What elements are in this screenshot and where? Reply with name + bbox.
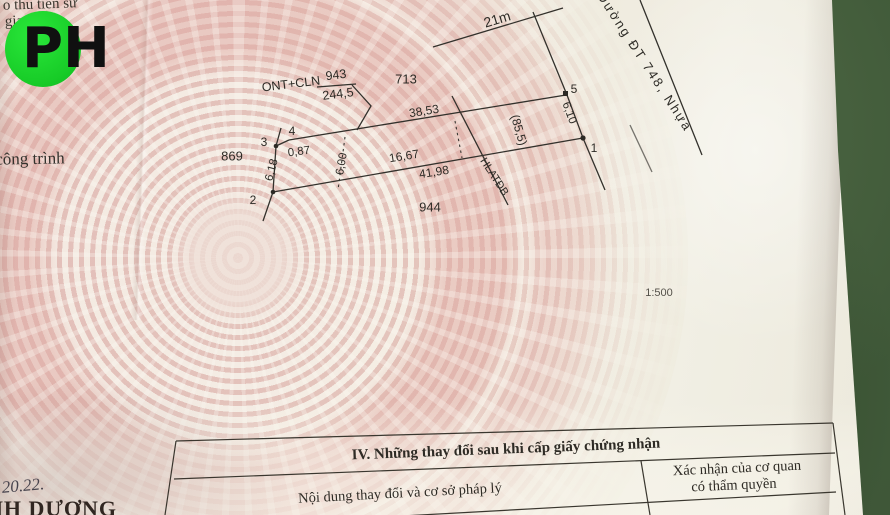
parcel-number-label: 943 — [325, 67, 347, 83]
vertex-1-label: 1 — [591, 141, 598, 155]
adjacent-parcel-south: 944 — [419, 200, 441, 215]
province-name-partial: NH DƯƠNG — [0, 496, 117, 515]
map-scale-label: 1:500 — [645, 287, 673, 299]
vertex-5-label: 5 — [571, 82, 578, 96]
vertex-5-marker — [563, 91, 568, 96]
vertex-3-marker — [274, 144, 279, 149]
cadastral-and-table-lines — [0, 0, 890, 515]
construction-text: công trình — [0, 148, 65, 169]
logo-monogram-icon: PH — [22, 14, 110, 84]
vertex-2-marker — [271, 190, 276, 195]
inner-dotted-line-2 — [455, 121, 462, 158]
certificate-photo: 21m Đường ĐT 748, Nhựa ONT+CLN 943 244,5… — [0, 0, 890, 515]
table-left-border — [165, 441, 176, 515]
leader-line — [352, 85, 371, 130]
vertex-4-label: 4 — [289, 124, 296, 138]
vertex-3-label: 3 — [261, 135, 268, 149]
vertex-2-label: 2 — [250, 193, 257, 207]
vertex-1-marker — [580, 135, 585, 140]
road-extra-line — [630, 125, 652, 172]
logo-badge: PH — [5, 11, 81, 87]
adjacent-parcel-north: 713 — [395, 72, 417, 87]
table-column-divider — [641, 461, 650, 515]
table-top-rule — [176, 423, 833, 441]
handwritten-number: 20.22. — [1, 474, 45, 498]
table-right-border — [833, 423, 845, 515]
adjacent-parcel-west: 869 — [221, 149, 243, 164]
